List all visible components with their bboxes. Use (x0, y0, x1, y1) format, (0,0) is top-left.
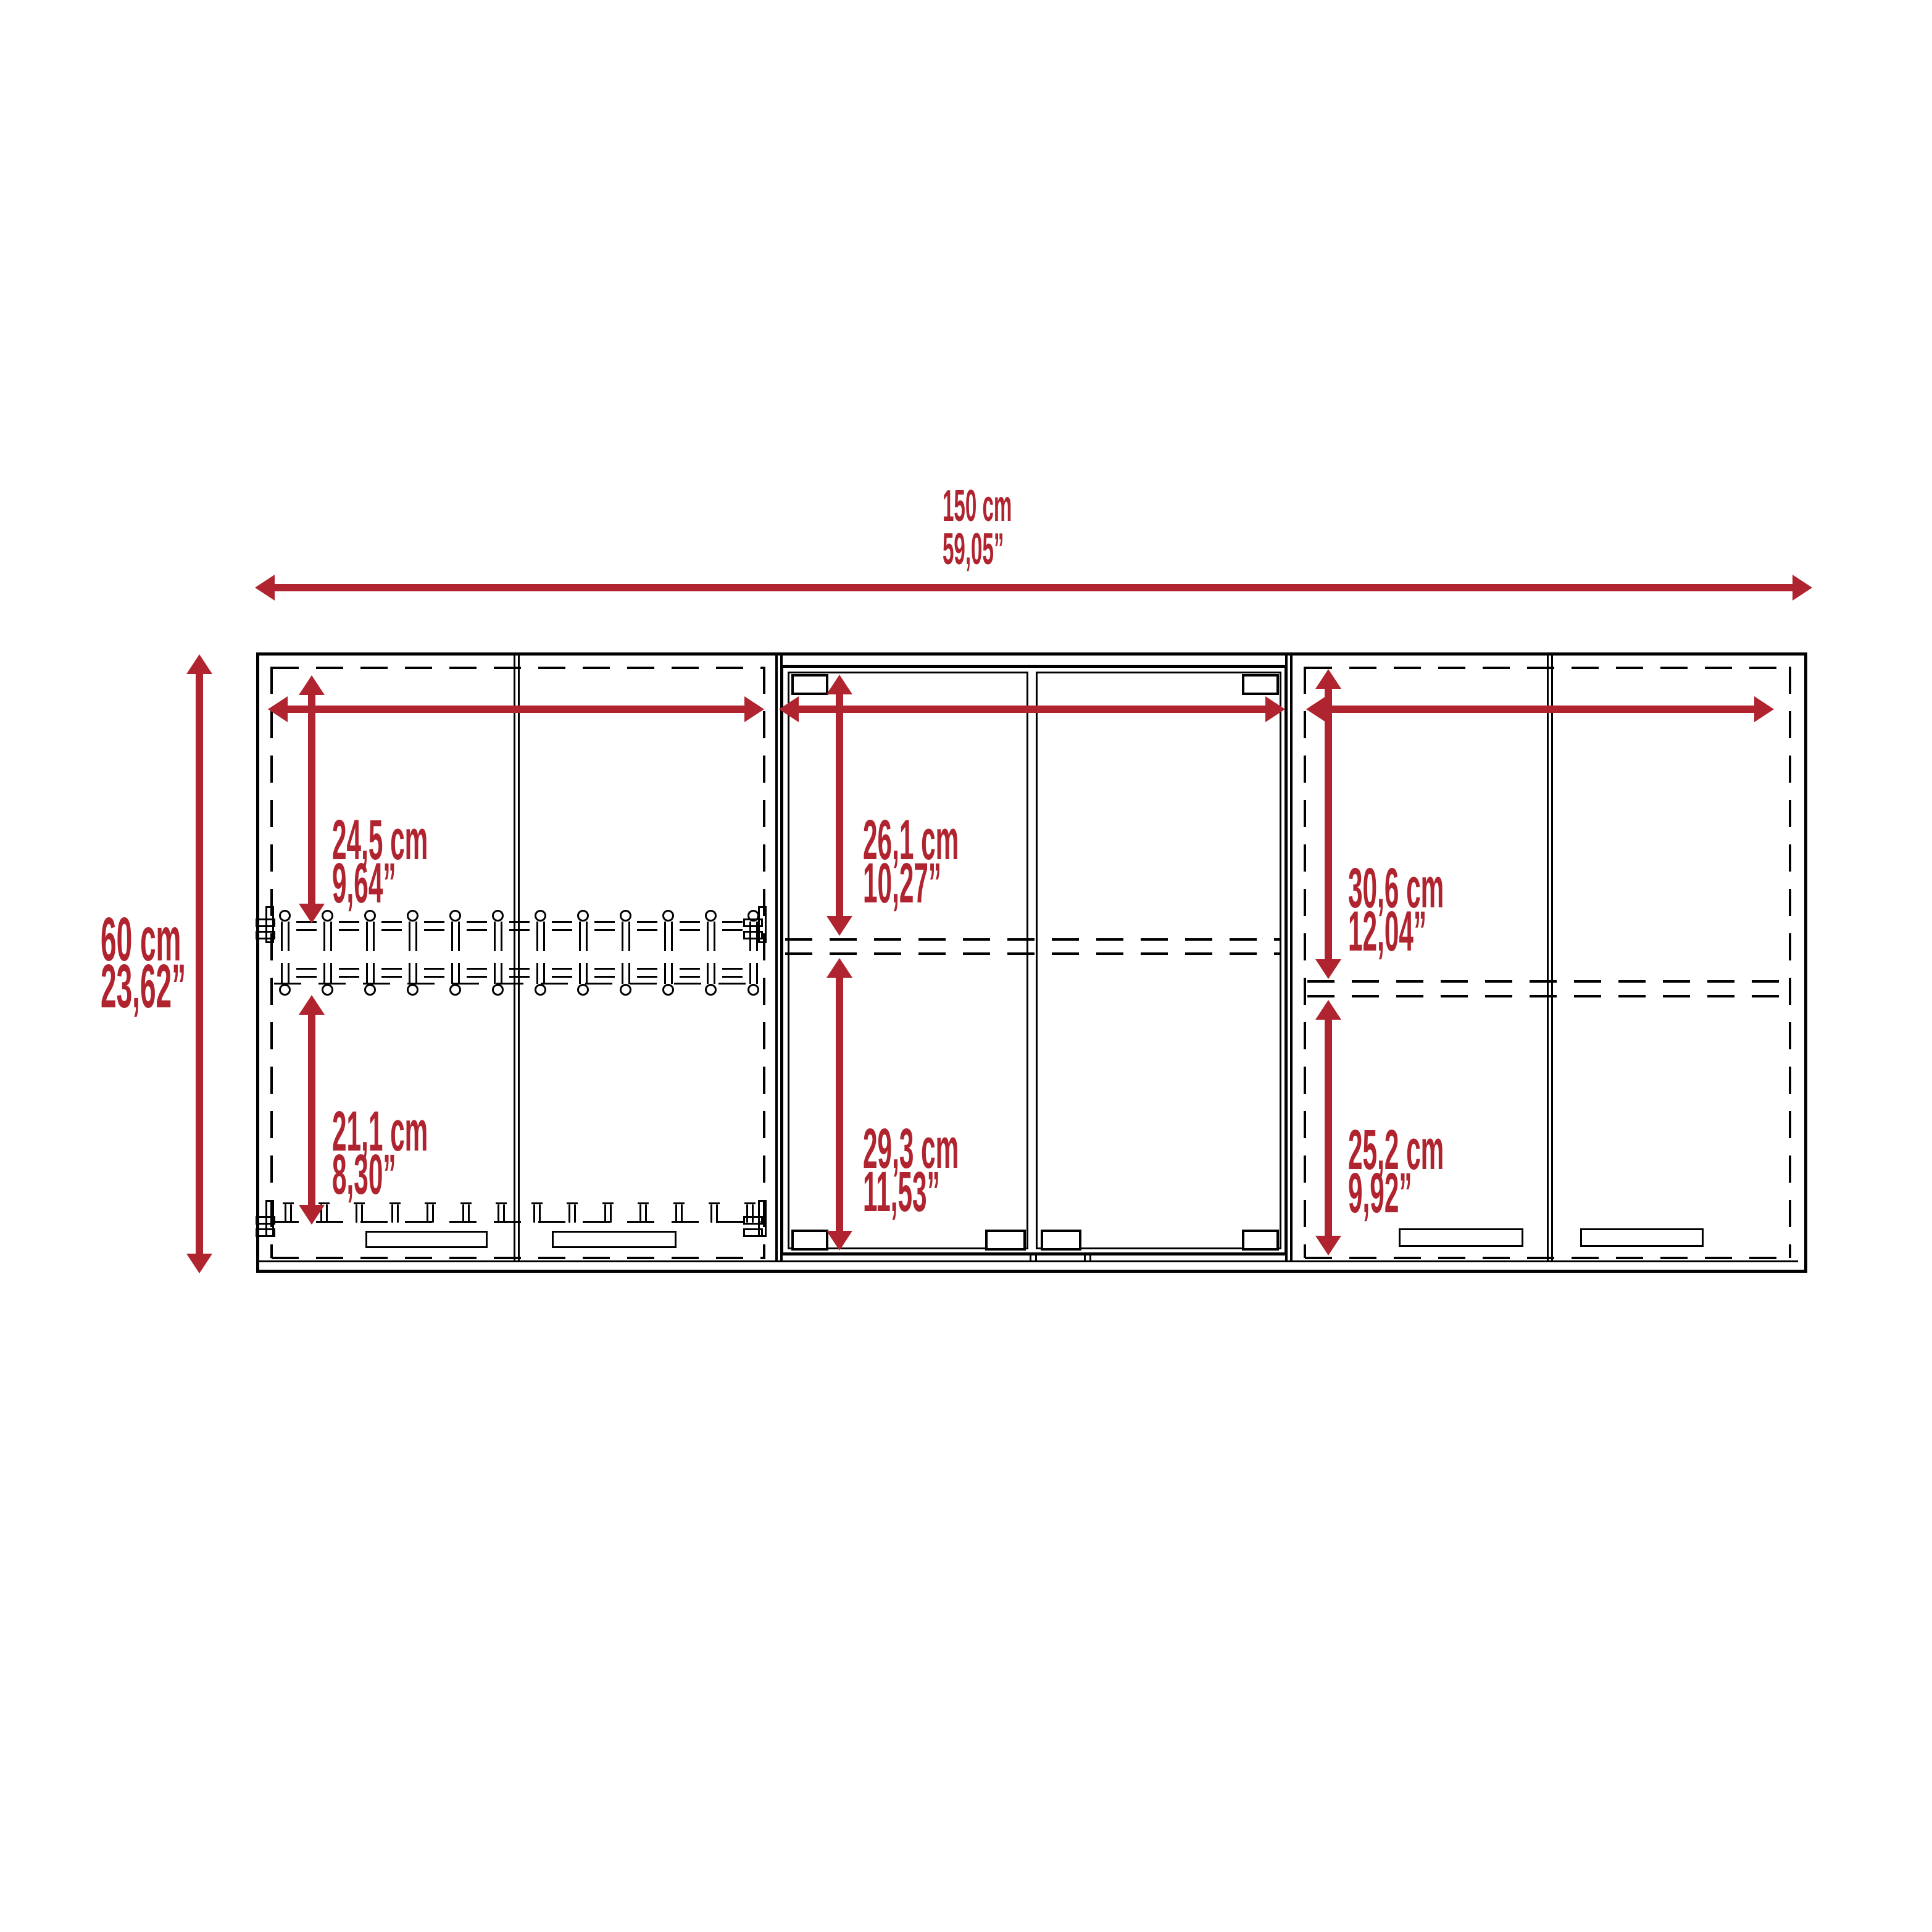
right-door-gap-line-1 (1547, 656, 1549, 1260)
rack-pin-unit (705, 910, 717, 951)
rack-pin-unit (364, 910, 376, 951)
rack-pin-unit (492, 963, 504, 996)
rack-pin-unit (449, 963, 461, 996)
overall-width-metric: 150 cm (943, 485, 1012, 528)
rack-hook (673, 1202, 685, 1223)
right-bottom-label: 25,2 cm 9,92” (1348, 1128, 1444, 1215)
rack-wire-marks (467, 968, 487, 978)
middle-pivot-tick-4 (1089, 1253, 1091, 1260)
overall-width-label: 150 cm 59,05” (943, 485, 1012, 571)
rack-wire-marks (722, 968, 743, 978)
rack-pin-unit (662, 910, 674, 951)
module-divider-right-2 (1290, 656, 1293, 1260)
rack-wire-marks (637, 968, 657, 978)
rack-pin-unit (407, 963, 418, 996)
rack-hook (602, 1202, 614, 1223)
rack-hook (709, 1202, 720, 1223)
left-door-gap-line-2 (518, 656, 520, 1260)
rack-wire-marks (339, 968, 359, 978)
rack-wire-marks (552, 921, 572, 931)
overall-height-arrow (196, 673, 203, 1255)
middle-hinge-bottom-left (791, 1230, 828, 1251)
middle-pivot-tick-3 (1084, 1253, 1086, 1260)
middle-door-right (1036, 672, 1281, 1249)
middle-bottom-label: 29,3 cm 11,53” (863, 1127, 959, 1214)
overall-width-imperial: 59,05” (943, 528, 1012, 571)
module-divider-left (775, 656, 778, 1260)
rack-wire-marks (552, 968, 572, 978)
overall-height-imperial: 23,62” (101, 963, 186, 1010)
rack-wire-marks (594, 968, 615, 978)
rack-pin-unit (705, 963, 717, 996)
rack-wire-marks (680, 921, 700, 931)
left-top-label: 24,5 cm 9,64” (332, 818, 428, 905)
middle-hinge-bottom-right (1242, 1230, 1279, 1251)
left-bottom-height-arrow (308, 1014, 315, 1206)
rack-hook (460, 1202, 472, 1223)
rack-hook (744, 1202, 756, 1223)
rack-pin-unit (577, 910, 589, 951)
rack-wire-marks (680, 968, 700, 978)
rack-pin-unit (449, 910, 461, 951)
rack-wire-marks (381, 968, 402, 978)
rack-pin-unit (279, 910, 291, 951)
rack-pin-unit (407, 910, 418, 951)
rack-wire-marks (424, 968, 444, 978)
rack-pin-unit (747, 963, 759, 996)
middle-top-height-arrow (836, 693, 843, 917)
right-bottom-height-arrow (1325, 1018, 1332, 1237)
middle-hinge-bottom-center-left (985, 1230, 1026, 1251)
rack-wire-marks (424, 921, 444, 931)
left-width-arrow (286, 706, 746, 713)
middle-width-arrow (797, 706, 1267, 713)
rack-wire-marks (339, 921, 359, 931)
rack-pin-unit (322, 963, 333, 996)
middle-shelf-dashed-2 (785, 952, 1281, 955)
rack-wire-marks (296, 968, 317, 978)
right-top-height-arrow (1325, 688, 1332, 960)
rack-hook (496, 1202, 507, 1223)
rack-pin-unit (279, 963, 291, 996)
rack-hook (638, 1202, 649, 1223)
rack-hook (425, 1202, 436, 1223)
right-width-arrow (1325, 706, 1755, 713)
middle-bottom-height-arrow (836, 976, 843, 1232)
right-door-handle-2 (1580, 1228, 1704, 1247)
right-opening-dashed-left (1304, 667, 1306, 1258)
rack-wire-marks (594, 921, 615, 931)
rack-wire-marks (722, 921, 743, 931)
left-door-gap-line-1 (514, 656, 515, 1260)
right-opening-dashed-right (1789, 667, 1791, 1258)
overall-width-arrow (273, 584, 1794, 591)
rack-hook (283, 1202, 294, 1223)
rack-pin-unit (535, 910, 546, 951)
left-bottom-label: 21,1 cm 8,30” (332, 1110, 428, 1196)
rack-pin-unit (620, 910, 631, 951)
left-opening-dashed-left (270, 667, 273, 1258)
overall-height-label: 60 cm 23,62” (101, 916, 186, 1010)
rack-pin-unit (577, 963, 589, 996)
middle-pivot-tick-2 (1035, 1253, 1037, 1260)
rack-wire-marks (637, 921, 657, 931)
middle-shelf-dashed-1 (785, 938, 1281, 941)
middle-pivot-tick-1 (1030, 1253, 1031, 1260)
rack-pin-unit (535, 963, 546, 996)
middle-hinge-bottom-center-right (1041, 1230, 1081, 1251)
left-door-handle-2 (552, 1231, 677, 1248)
rack-hook (567, 1202, 578, 1223)
rack-pin-unit (492, 910, 504, 951)
middle-top-label: 26,1 cm 10,27” (863, 818, 959, 905)
rack-wire-marks (467, 921, 487, 931)
rack-pin-unit (620, 963, 631, 996)
right-door-gap-line-2 (1551, 656, 1553, 1260)
cabinet-bottom-edge-line (259, 1260, 1798, 1262)
rack-wire-marks (381, 921, 402, 931)
middle-hinge-top-right (1242, 674, 1279, 695)
left-top-height-arrow (308, 694, 315, 905)
rack-hook (531, 1202, 543, 1223)
rack-pin-unit (662, 963, 674, 996)
right-top-label: 30,6 cm 12,04” (1348, 867, 1444, 953)
cabinet-dimension-drawing: 150 cm 59,05” 60 cm 23,62” (0, 0, 1932, 1932)
rack-pin-unit (364, 963, 376, 996)
right-door-handle-1 (1399, 1228, 1523, 1247)
left-opening-dashed-right (763, 667, 765, 1258)
middle-hinge-top-left (791, 674, 828, 695)
left-door-handle-1 (365, 1231, 488, 1248)
